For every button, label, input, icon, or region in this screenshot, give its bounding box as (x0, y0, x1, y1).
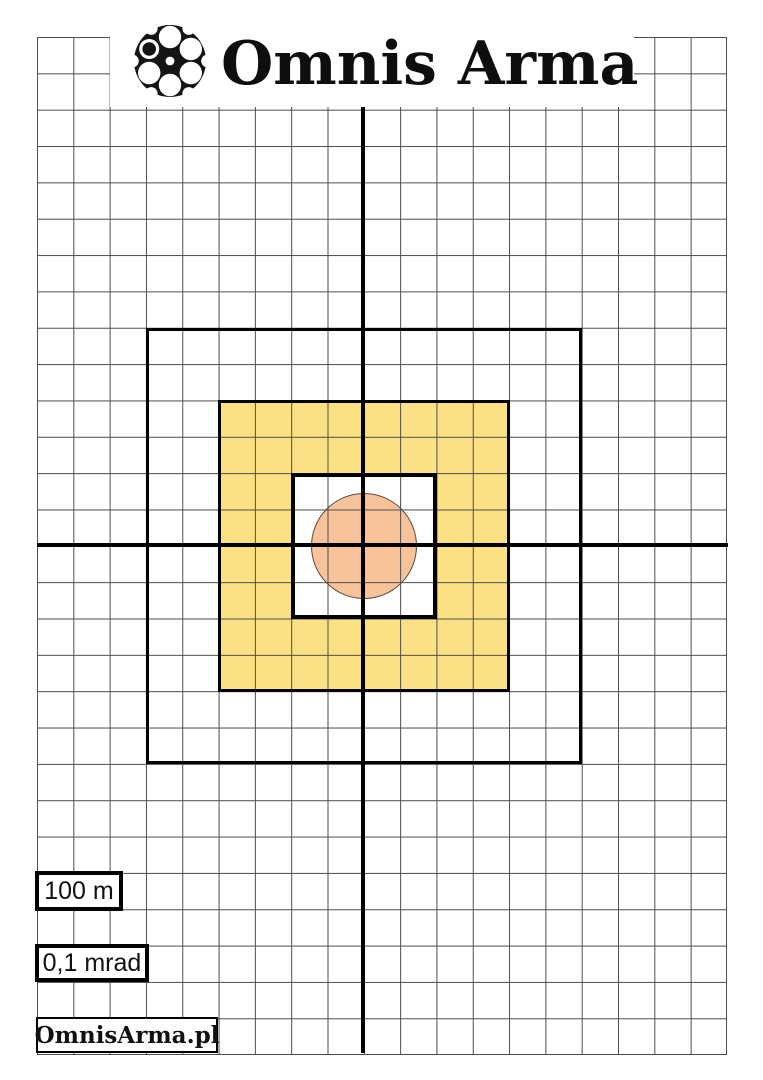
distance-label: 100 m (44, 877, 113, 906)
brand-title: Omnis Arma (221, 29, 638, 99)
crosshair-vertical-line (361, 106, 365, 1053)
website-label-box: OmnisArma.pl (36, 1017, 218, 1053)
crosshair-horizontal-line (37, 543, 728, 547)
angular-unit-label-box: 0,1 mrad (35, 944, 149, 982)
distance-label-box: 100 m (35, 871, 123, 911)
angular-unit-label: 0,1 mrad (43, 949, 142, 978)
website-label: OmnisArma.pl (35, 1022, 220, 1049)
target-sheet: Omnis Arma 100 m 0,1 mrad OmnisArma.pl (0, 0, 763, 1080)
revolver-cylinder-icon (130, 18, 210, 104)
